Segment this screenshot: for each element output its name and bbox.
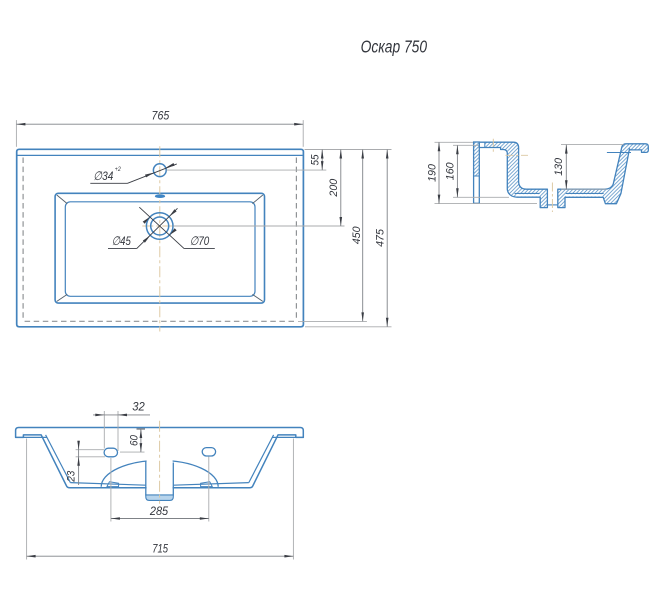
svg-text:160: 160 <box>445 162 457 180</box>
svg-text:∅70: ∅70 <box>190 234 210 248</box>
svg-text:190: 190 <box>427 163 439 181</box>
svg-text:130: 130 <box>553 157 565 175</box>
svg-text:285: 285 <box>149 504 168 518</box>
svg-text:+2: +2 <box>115 166 121 173</box>
svg-text:55: 55 <box>309 154 321 166</box>
svg-text:200: 200 <box>328 178 340 197</box>
svg-text:∅45: ∅45 <box>112 234 131 248</box>
svg-text:32: 32 <box>132 399 145 413</box>
svg-text:450: 450 <box>351 226 363 244</box>
svg-text:60: 60 <box>129 434 141 446</box>
svg-text:765: 765 <box>152 109 170 123</box>
svg-text:23: 23 <box>66 470 78 482</box>
svg-text:Оскар 750: Оскар 750 <box>361 37 428 57</box>
svg-text:∅34: ∅34 <box>93 169 113 183</box>
svg-text:715: 715 <box>152 541 168 555</box>
svg-text:475: 475 <box>375 228 387 246</box>
